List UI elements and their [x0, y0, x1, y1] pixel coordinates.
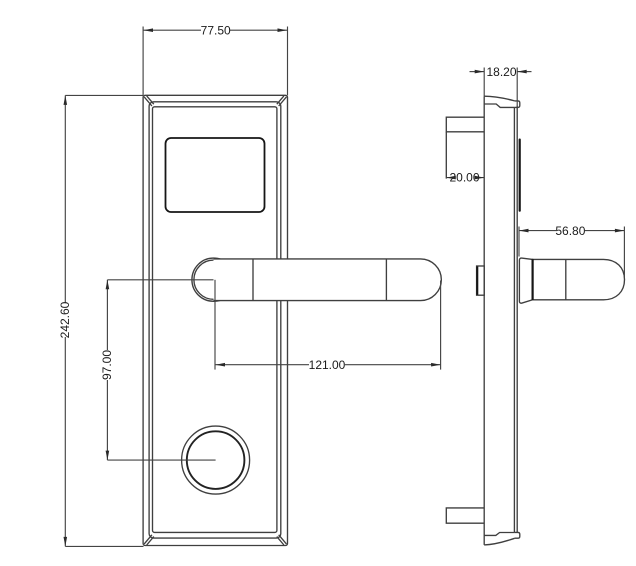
svg-text:121.00: 121.00 — [309, 358, 346, 372]
svg-text:77.50: 77.50 — [201, 23, 231, 37]
svg-text:97.00: 97.00 — [100, 350, 114, 380]
svg-text:242.60: 242.60 — [58, 301, 72, 338]
svg-text:18.20: 18.20 — [486, 65, 516, 79]
svg-text:56.80: 56.80 — [555, 224, 585, 238]
